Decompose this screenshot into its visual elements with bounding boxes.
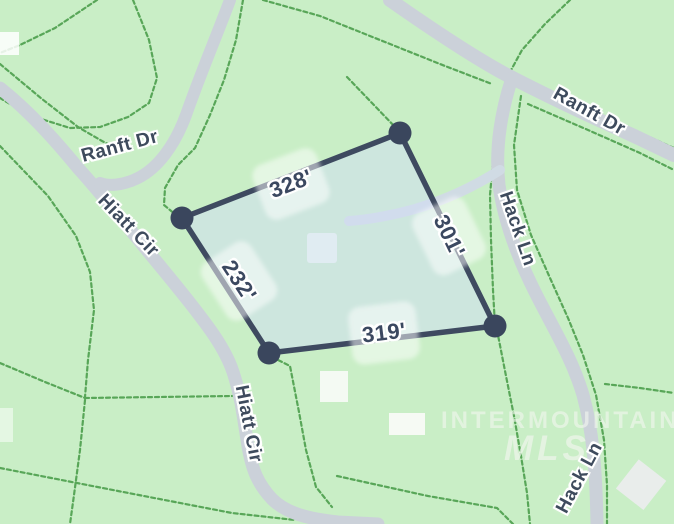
building-footprint <box>320 371 348 402</box>
lot-dimension-left: 232' <box>216 255 262 306</box>
lot-corner-dot[interactable] <box>484 315 507 338</box>
building-footprint <box>389 413 425 435</box>
lot-corner-dot[interactable] <box>171 207 194 230</box>
dimension-label-text: 319' <box>361 317 408 348</box>
building-footprint <box>0 408 13 442</box>
lot-corner-dot[interactable] <box>389 122 412 145</box>
building-footprint <box>0 32 19 55</box>
map-canvas[interactable]: INTERMOUNTAIN MLS 328' 232' 319' 301' Ra… <box>0 0 674 524</box>
lot-corner-dot[interactable] <box>258 342 281 365</box>
lot-dimension-right: 301' <box>428 211 471 262</box>
lot-dimension-bottom: 319' <box>361 317 408 348</box>
lot-dimension-top: 328' <box>266 164 316 204</box>
